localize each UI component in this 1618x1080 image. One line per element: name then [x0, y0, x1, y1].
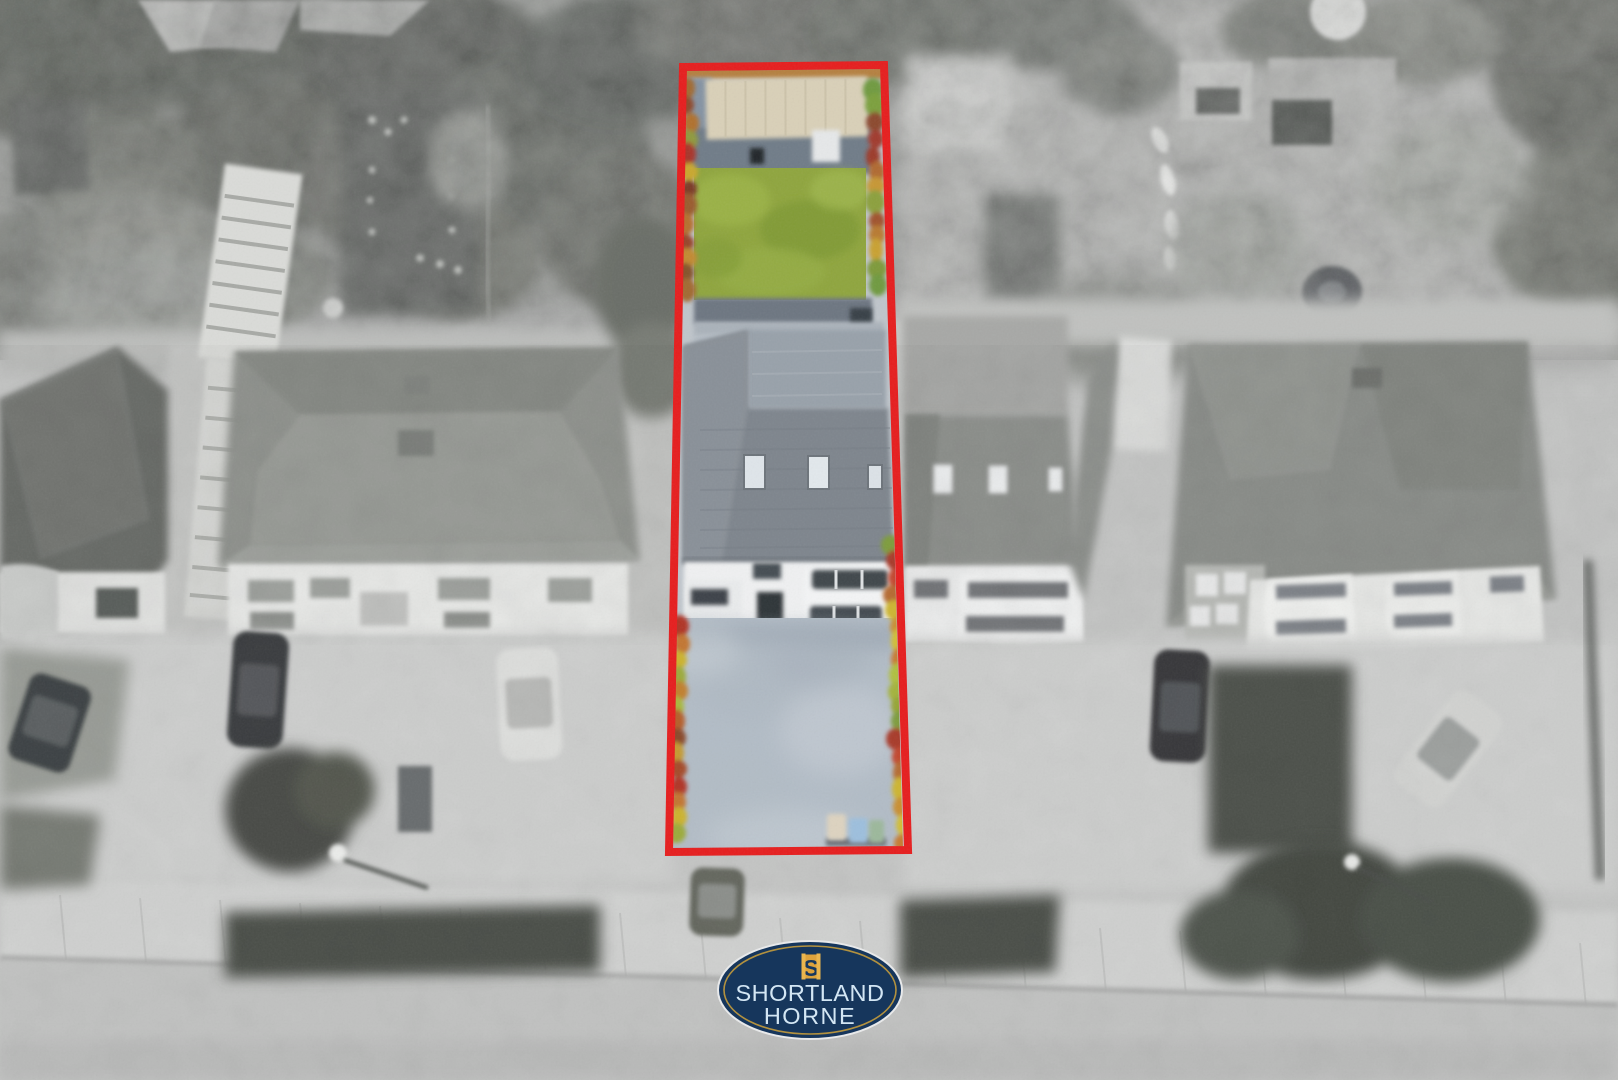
svg-text:S: S: [803, 955, 818, 981]
svg-text:HORNE: HORNE: [764, 1003, 856, 1029]
